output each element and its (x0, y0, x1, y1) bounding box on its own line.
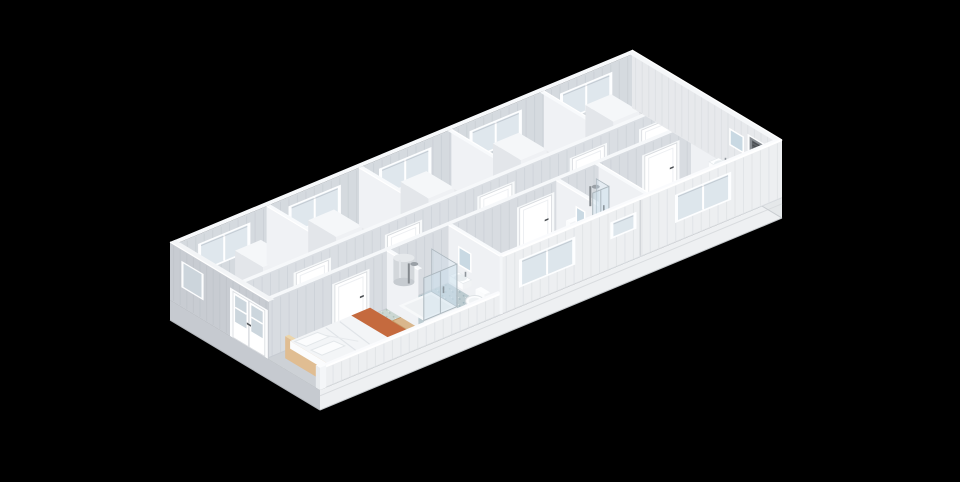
water-heater (393, 254, 414, 286)
modular-building-render (0, 0, 960, 482)
isometric-building-svg (0, 0, 960, 482)
corner-post (316, 363, 326, 390)
